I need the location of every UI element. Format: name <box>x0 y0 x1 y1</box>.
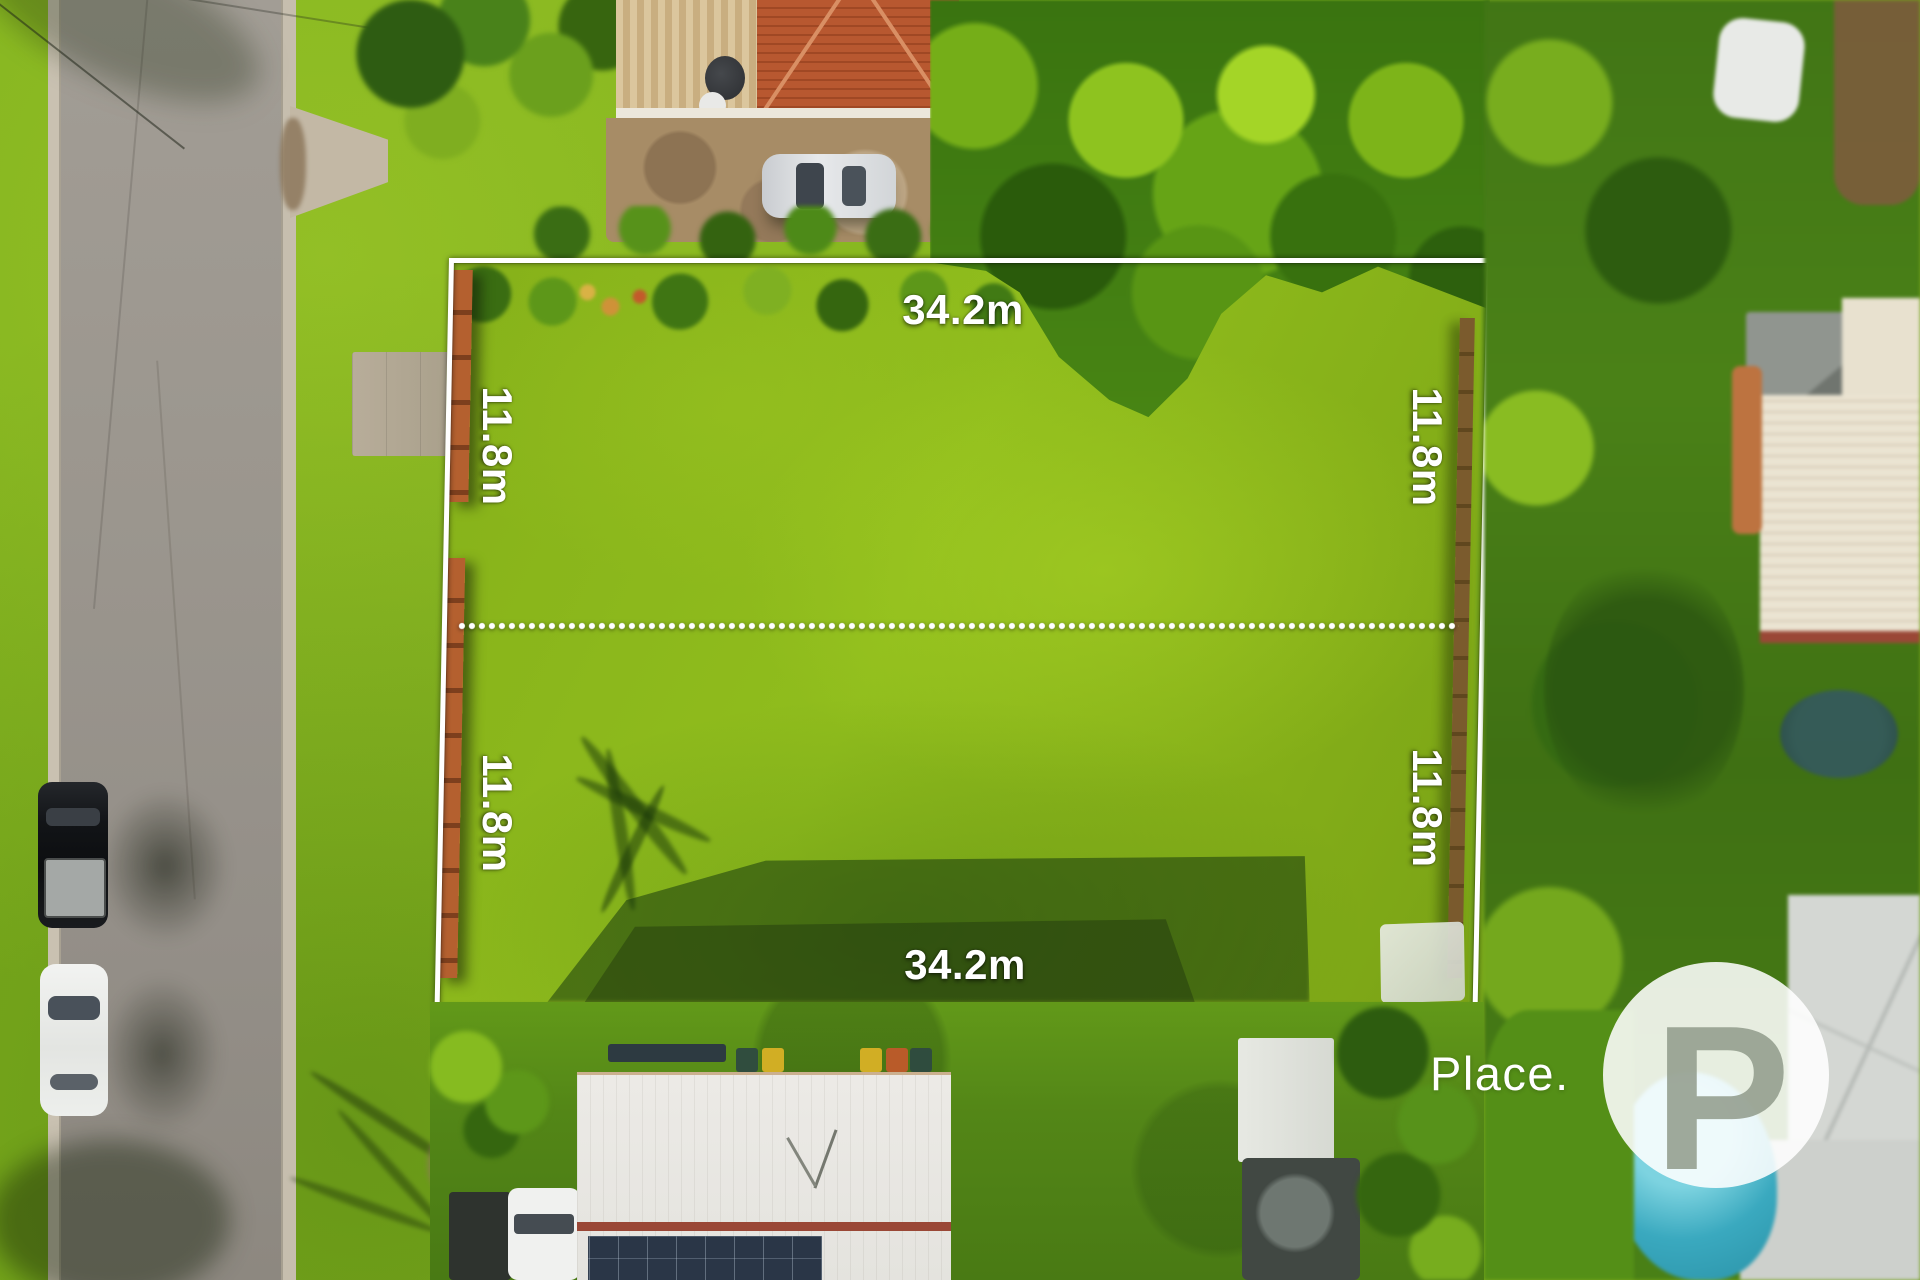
trees <box>1336 996 1492 1280</box>
windshield <box>48 996 100 1020</box>
dimension-label-bottom-frontage: 34.2m <box>904 941 1026 989</box>
small-shed <box>1380 922 1465 1002</box>
timber-fence-left <box>448 270 472 502</box>
wheelie-bin <box>762 1048 784 1072</box>
black-ute <box>38 782 108 928</box>
concrete-slab <box>352 352 452 456</box>
solar-panels <box>588 1236 822 1280</box>
white-car <box>40 964 108 1116</box>
roof-ridge <box>577 1222 951 1231</box>
wheelie-bin <box>886 1048 908 1072</box>
car-shadow <box>100 788 230 944</box>
white-car <box>1711 16 1807 124</box>
place-logo-monogram: P <box>1600 959 1832 1191</box>
windshield <box>796 163 824 209</box>
ute-tray <box>44 858 106 918</box>
roof-hip-line <box>760 0 842 110</box>
terracotta-roof <box>757 0 959 110</box>
car-shadow <box>102 975 222 1133</box>
dirt-patch <box>280 118 306 210</box>
windshield <box>46 808 100 826</box>
solar-hot-water <box>608 1044 726 1062</box>
timber-fence-right <box>1447 318 1475 978</box>
logo-p-letter: P <box>1653 983 1790 1191</box>
truck-cab <box>508 1188 580 1280</box>
dimension-label-top-frontage: 34.2m <box>902 286 1024 334</box>
rear-window <box>50 1074 98 1090</box>
dimension-label-left-upper: 11.8m <box>473 386 521 505</box>
dimension-label-right-lower: 11.8m <box>1403 748 1451 867</box>
truck-tray <box>449 1192 511 1280</box>
wheelie-bin <box>910 1048 932 1072</box>
vacant-lot-lawn <box>435 258 1482 1002</box>
orange-wall <box>1732 366 1762 534</box>
garden-shed <box>1238 1038 1334 1162</box>
wheelie-bin <box>736 1048 758 1072</box>
place-brand-wordmark: Place. <box>1430 1046 1570 1101</box>
dimension-label-right-upper: 11.8m <box>1403 387 1451 506</box>
hedge <box>516 206 976 262</box>
cream-corrugated-roof <box>1760 395 1920 643</box>
wheelie-bin <box>860 1048 882 1072</box>
rear-window <box>842 166 866 206</box>
palm-foliage <box>415 1025 585 1165</box>
trampoline <box>1780 690 1898 778</box>
lot-split-dotted-line <box>458 622 1459 630</box>
brown-structure <box>1834 0 1920 205</box>
palm-shadow <box>601 747 639 912</box>
carport-roof <box>616 0 758 115</box>
dimension-label-left-lower: 11.8m <box>473 753 521 872</box>
windshield <box>514 1214 574 1234</box>
aerial-property-photo: 34.2m 34.2m 11.8m 11.8m 11.8m 11.8m Plac… <box>0 0 1920 1280</box>
tree <box>1544 560 1744 820</box>
timber-fence-left <box>437 558 465 978</box>
